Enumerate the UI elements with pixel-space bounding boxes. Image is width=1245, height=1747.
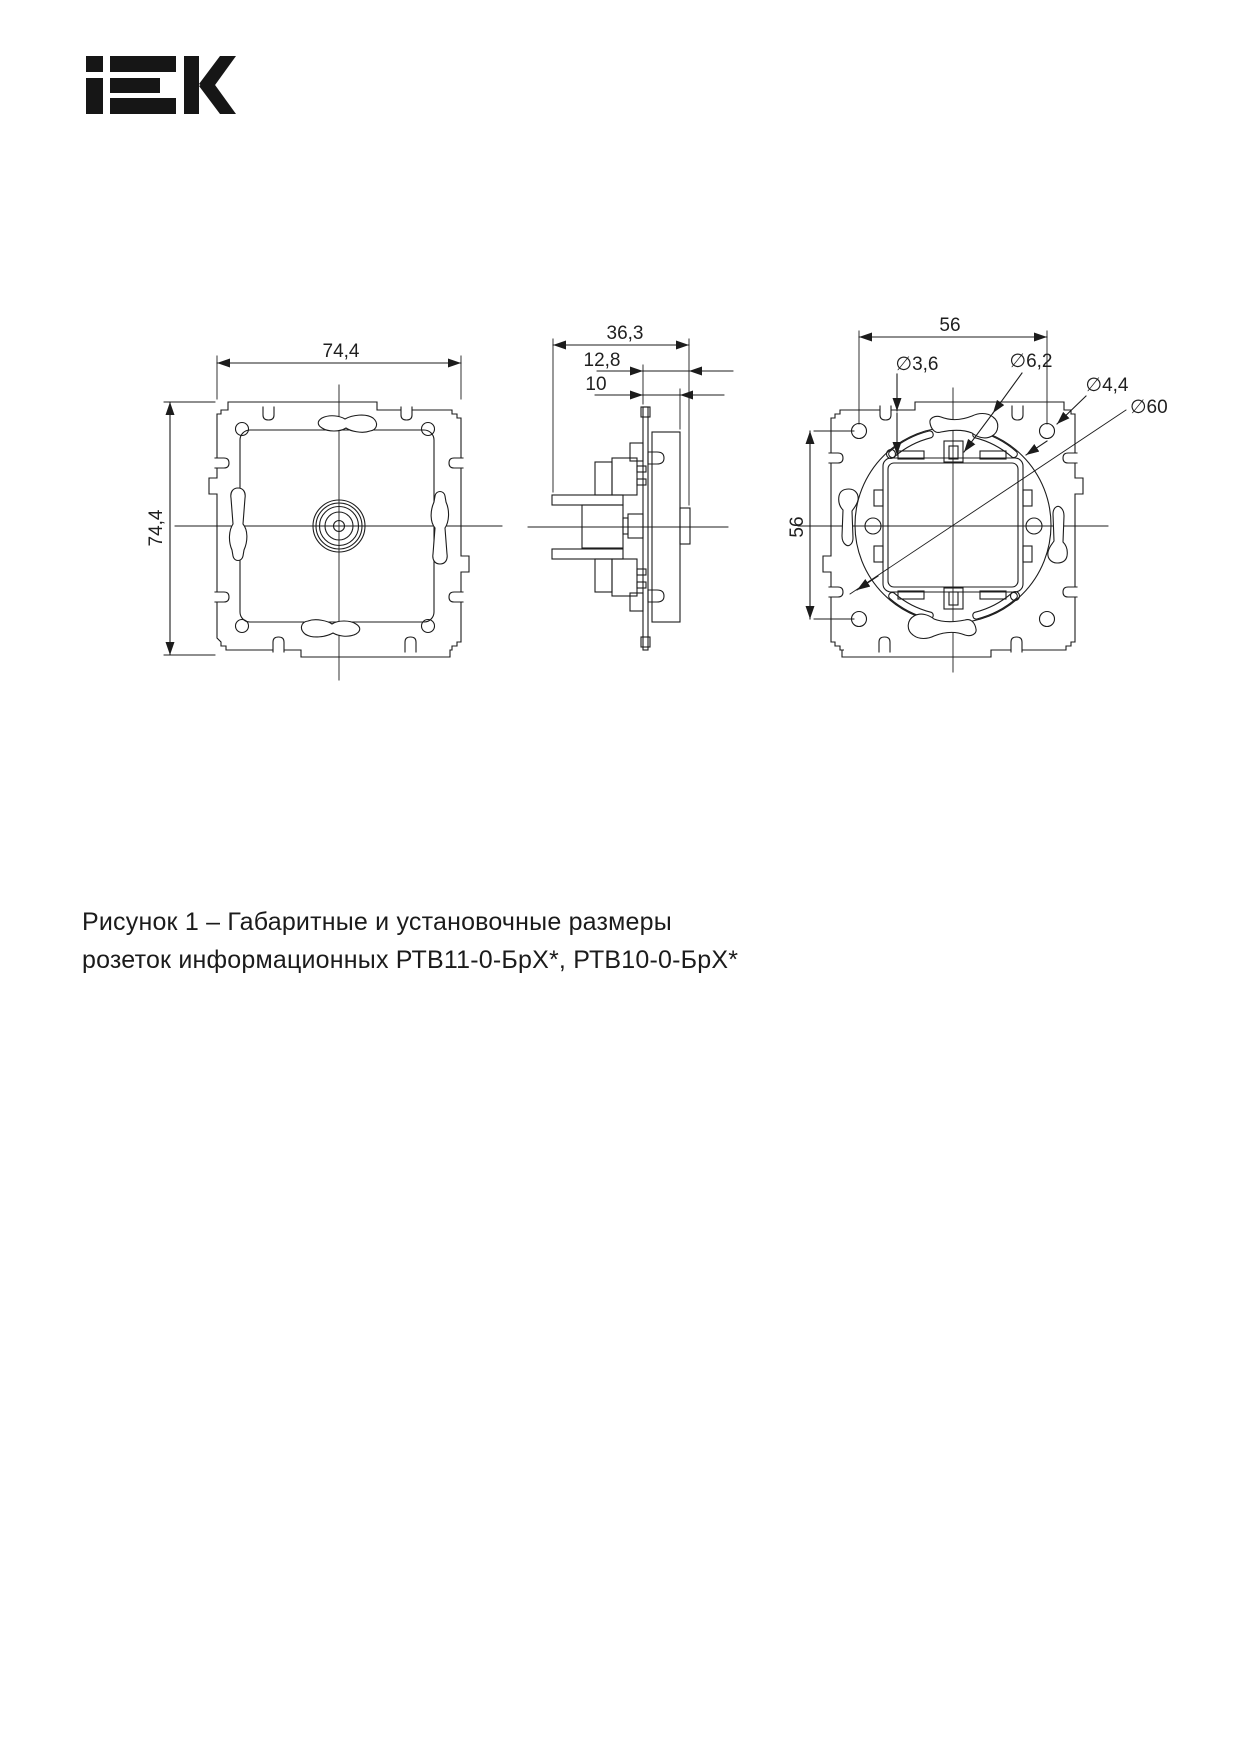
dim-side-face: 10: [585, 374, 606, 395]
dia-mount-circle-label: ∅60: [1130, 397, 1168, 418]
back-diameter-leaders: ∅3,6 ∅6,2 ∅4,4 ∅60: [850, 351, 1168, 594]
dim-front-width: 74,4: [323, 341, 360, 362]
caption-line-1: Рисунок 1 – Габаритные и установочные ра…: [82, 903, 738, 941]
front-screw-holes: [236, 423, 435, 633]
side-support-plate: [643, 407, 648, 650]
back-view: 56 56 ∅3,6 ∅6,2 ∅4,4: [787, 315, 1168, 672]
dim-side-cover: 12,8: [584, 350, 621, 371]
front-view: 74,4 74,4: [146, 341, 502, 680]
dim-back-hole-spacing-v: 56: [787, 516, 808, 537]
dia-arc-hole-label: ∅3,6: [896, 354, 939, 375]
figure-caption: Рисунок 1 – Габаритные и установочные ра…: [82, 903, 738, 979]
dia-corner-hole-label: ∅4,4: [1086, 375, 1129, 396]
front-height-dimension: 74,4: [146, 402, 215, 655]
side-connector-barrel: [582, 505, 623, 548]
dim-back-hole-spacing-h: 56: [939, 315, 960, 336]
dia-slot-label: ∅6,2: [1010, 351, 1053, 372]
dim-side-depth: 36,3: [607, 323, 644, 344]
caption-line-2: розеток информационных РТВ11-0-БрХ*, РТВ…: [82, 941, 738, 979]
dim-front-height: 74,4: [146, 509, 167, 546]
document-page: 74,4 74,4: [0, 0, 1245, 1747]
side-view: 36,3 12,8 10: [528, 323, 733, 650]
side-connector-collar: [680, 508, 690, 544]
technical-drawing: 74,4 74,4: [0, 0, 1245, 760]
